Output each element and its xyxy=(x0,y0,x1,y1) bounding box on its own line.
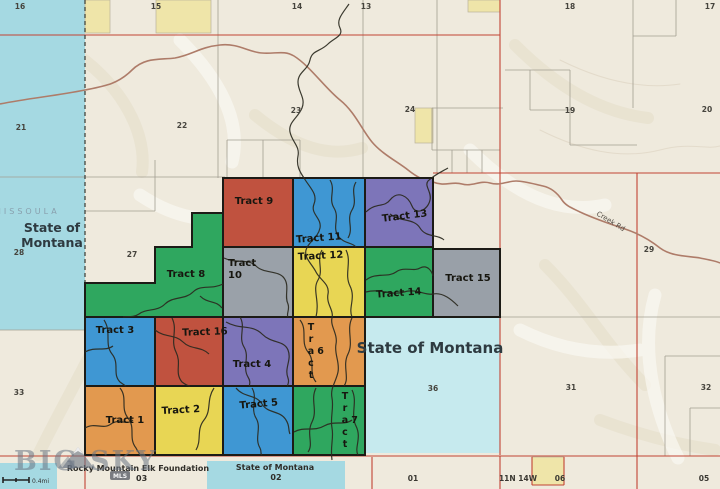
owner-label-state-of-montana: State of Montana xyxy=(236,463,314,472)
section-number: 33 xyxy=(14,388,24,397)
tract-16-label: Tract 16 xyxy=(182,326,228,339)
map-canvas[interactable]: Tract 9 Tract 11 Tract 13 Tract 8 Tract1… xyxy=(0,0,720,489)
section-number: 29 xyxy=(644,245,654,254)
parcel-area xyxy=(85,0,110,33)
tract-10-label-line1: Tract xyxy=(228,258,256,269)
section-number: 27 xyxy=(127,250,137,259)
state-land-left-area[interactable] xyxy=(0,0,85,330)
section-number: 15 xyxy=(151,2,161,11)
section-number: 24 xyxy=(405,105,415,114)
section-number: 13 xyxy=(361,2,371,11)
section-number: 16 xyxy=(15,2,25,11)
section-number: 31 xyxy=(566,383,576,392)
township-range-label: 11N 14W xyxy=(499,474,538,483)
map-viewport[interactable]: Tract 9 Tract 11 Tract 13 Tract 8 Tract1… xyxy=(0,0,720,489)
tract-3-label: Tract 3 xyxy=(96,325,135,336)
parcel-area xyxy=(415,108,433,143)
tract-9-area[interactable] xyxy=(223,178,293,247)
parcel-area xyxy=(156,0,211,33)
county-label-missoula: MISSOULA xyxy=(0,207,60,216)
scale-bar-label: 0.4mi xyxy=(32,478,49,485)
section-number: 23 xyxy=(291,106,301,115)
tract-10-label-line2: 10 xyxy=(228,270,242,281)
tract-6-label: Tract 6 xyxy=(306,319,323,385)
state-of-montana-right-label: State of Montana xyxy=(357,339,504,357)
section-number-36: 36 xyxy=(428,384,438,393)
tract-2-label: Tract 2 xyxy=(161,404,200,417)
state-of-montana-left-label: State of xyxy=(24,220,81,235)
section-number: 28 xyxy=(14,248,24,257)
tract-4-label: Tract 4 xyxy=(233,359,272,370)
section-number-06: 06 xyxy=(555,474,565,483)
section-number: 32 xyxy=(701,383,711,392)
state-of-montana-left-label2: Montana xyxy=(21,235,83,250)
section-number: 14 xyxy=(292,2,302,11)
section-number-05: 05 xyxy=(699,474,709,483)
tract-14-area[interactable] xyxy=(365,247,433,317)
section-number: 20 xyxy=(702,105,712,114)
section-number: 17 xyxy=(705,2,715,11)
parcel-area xyxy=(468,0,500,12)
section-number: 18 xyxy=(565,2,575,11)
tract-2-area[interactable] xyxy=(155,386,223,455)
tract-7-label: Tract 7 xyxy=(340,389,357,453)
tract-1-label: Tract 1 xyxy=(106,415,145,426)
section-number-01: 01 xyxy=(408,474,418,483)
tract-4-area[interactable] xyxy=(223,317,293,386)
logo-word-sky: SKY xyxy=(90,446,158,477)
section-number-02: 02 xyxy=(270,473,281,482)
section-number: 21 xyxy=(16,123,26,132)
tract-15-label: Tract 15 xyxy=(445,273,491,284)
tract-9-label: Tract 9 xyxy=(235,196,274,207)
section-number: 19 xyxy=(565,106,575,115)
section-number: 22 xyxy=(177,121,187,130)
tract-8-label: Tract 8 xyxy=(167,269,206,280)
